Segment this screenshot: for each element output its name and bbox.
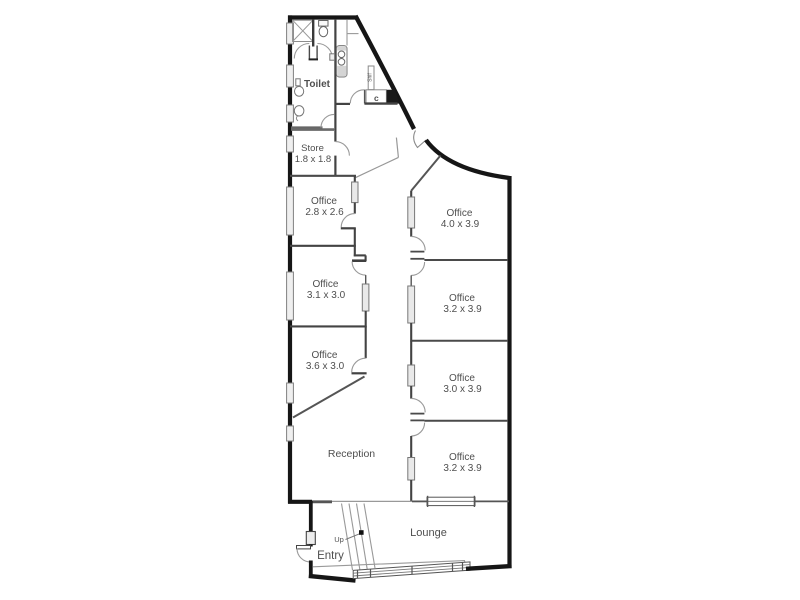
svg-text:Store: Store <box>301 143 324 154</box>
svg-text:Office: Office <box>449 293 475 304</box>
svg-text:c: c <box>374 93 379 103</box>
svg-text:Office: Office <box>449 452 475 463</box>
svg-text:Office: Office <box>447 208 473 219</box>
svg-text:Reception: Reception <box>328 448 375 460</box>
svg-text:4.0 x 3.9: 4.0 x 3.9 <box>441 219 480 230</box>
svg-text:Up: Up <box>334 535 344 544</box>
svg-text:Lounge: Lounge <box>410 527 447 539</box>
svg-text:3.0 x 3.9: 3.0 x 3.9 <box>443 384 482 395</box>
svg-text:3.1 x 3.0: 3.1 x 3.0 <box>307 290 346 301</box>
svg-text:Office: Office <box>313 279 339 290</box>
svg-text:Office: Office <box>449 373 475 384</box>
svg-text:Toilet: Toilet <box>304 79 331 90</box>
svg-text:Shlf: Shlf <box>367 73 373 82</box>
svg-text:Office: Office <box>312 350 338 361</box>
svg-text:Office: Office <box>311 196 337 207</box>
svg-text:3.2 x 3.9: 3.2 x 3.9 <box>443 463 482 474</box>
svg-text:3.2 x 3.9: 3.2 x 3.9 <box>443 304 482 315</box>
svg-text:2.8 x 2.6: 2.8 x 2.6 <box>305 207 344 218</box>
svg-text:Entry: Entry <box>317 550 344 562</box>
svg-text:1.8 x 1.8: 1.8 x 1.8 <box>295 154 331 165</box>
svg-text:3.6 x 3.0: 3.6 x 3.0 <box>306 361 345 372</box>
